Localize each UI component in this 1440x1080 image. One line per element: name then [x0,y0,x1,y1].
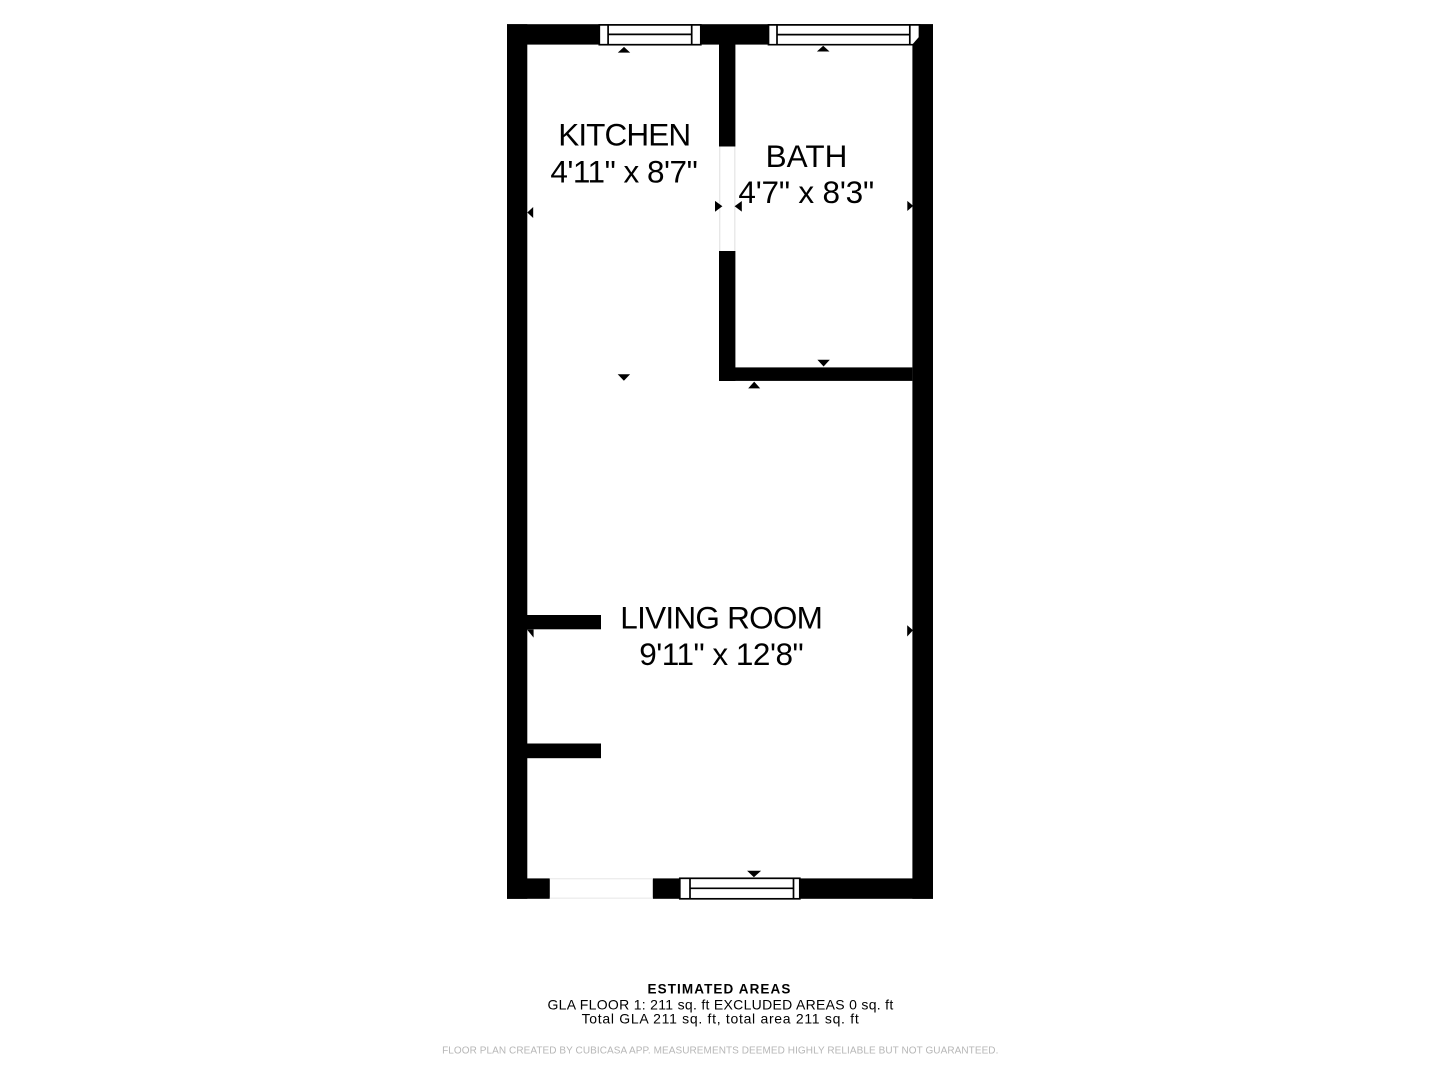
svg-text:Total GLA 211 sq. ft, total ar: Total GLA 211 sq. ft, total area 211 sq.… [582,1010,860,1026]
svg-text:KITCHEN: KITCHEN [558,117,690,153]
svg-text:FLOOR PLAN CREATED BY CUBICASA: FLOOR PLAN CREATED BY CUBICASA APP. MEAS… [442,1046,998,1057]
svg-text:BATH: BATH [766,138,848,174]
svg-text:4'7" x 8'3": 4'7" x 8'3" [738,174,874,210]
svg-text:ESTIMATED AREAS: ESTIMATED AREAS [647,981,791,996]
svg-text:9'11" x 12'8": 9'11" x 12'8" [639,636,803,672]
svg-text:LIVING ROOM: LIVING ROOM [620,599,822,635]
svg-text:4'11" x 8'7": 4'11" x 8'7" [550,154,697,190]
